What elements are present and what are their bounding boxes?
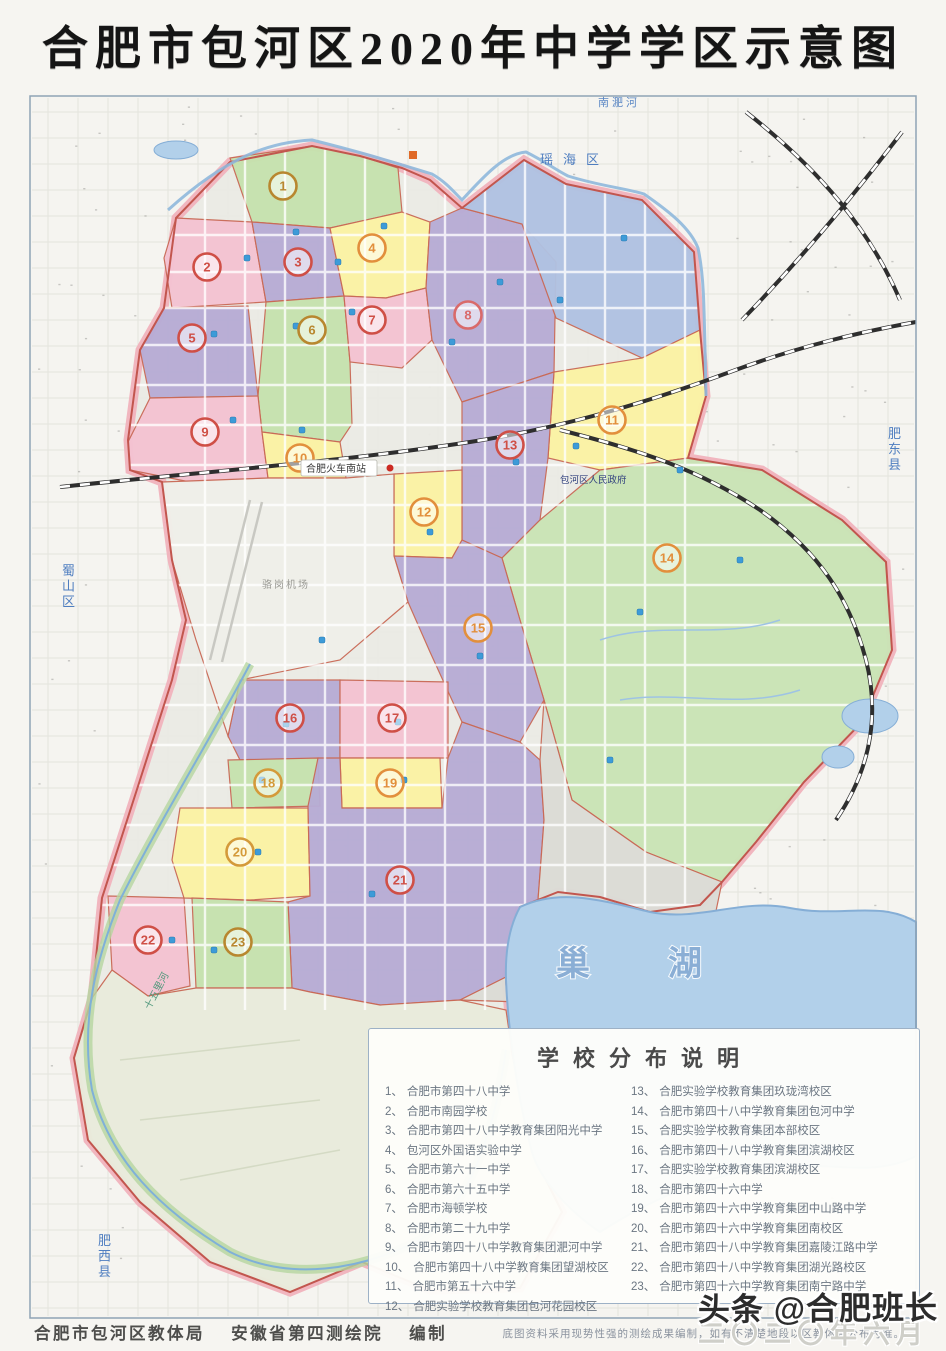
legend-item-number: 13、 — [631, 1086, 655, 1098]
school-icon — [319, 637, 325, 643]
legend-item-number: 22、 — [631, 1262, 655, 1274]
zone-badge-number: 6 — [308, 323, 315, 338]
school-icon — [369, 891, 375, 897]
legend-item: 11、合肥市第五十六中学 — [385, 1278, 631, 1298]
legend-item: 19、合肥市第四十六中学教育集团中山路中学 — [631, 1200, 905, 1220]
legend-item-school: 合肥市第四十六中学教育集团中山路中学 — [659, 1203, 866, 1215]
legend-item-school: 合肥市第四十八中学教育集团阳光中学 — [407, 1125, 603, 1137]
legend-item-number: 6、 — [385, 1184, 403, 1196]
school-icon — [381, 223, 387, 229]
legend-item: 22、合肥市第四十八中学教育集团湖光路校区 — [631, 1259, 905, 1279]
legend-item-number: 17、 — [631, 1164, 655, 1176]
school-icon — [621, 235, 627, 241]
legend-item-school: 合肥市第四十八中学教育集团淝河中学 — [407, 1242, 603, 1254]
legend-column-left: 1、合肥市第四十八中学2、合肥市南园学校3、合肥市第四十八中学教育集团阳光中学4… — [385, 1083, 631, 1317]
legend-item-number: 21、 — [631, 1242, 655, 1254]
map-label: 巢 — [556, 945, 590, 983]
zone-badge-number: 21 — [393, 873, 407, 888]
zone-badge-number: 5 — [188, 331, 195, 346]
school-icon — [255, 849, 261, 855]
legend-item-number: 5、 — [385, 1164, 403, 1176]
legend-item-number: 3、 — [385, 1125, 403, 1137]
zone-badge-number: 1 — [279, 179, 286, 194]
legend-item: 9、合肥市第四十八中学教育集团淝河中学 — [385, 1239, 631, 1259]
legend-item-school: 合肥市第六十五中学 — [407, 1184, 511, 1196]
legend-item-number: 14、 — [631, 1106, 655, 1118]
legend-item-school: 合肥市南园学校 — [407, 1106, 488, 1118]
legend-item: 1、合肥市第四十八中学 — [385, 1083, 631, 1103]
legend-item-number: 20、 — [631, 1223, 655, 1235]
zone-badge-11: 11 — [599, 407, 626, 434]
zone-badge-number: 16 — [283, 711, 297, 726]
legend-item-school: 合肥市第五十六中学 — [412, 1281, 516, 1293]
poi-square — [409, 151, 417, 159]
legend-item: 15、合肥实验学校教育集团本部校区 — [631, 1122, 905, 1142]
watermark-toutiao: 头条 @合肥班长 — [608, 1283, 938, 1332]
school-icon — [677, 467, 683, 473]
zone-badge-14: 14 — [654, 545, 681, 572]
map-label: 南淝河 — [598, 95, 640, 109]
school-icon — [637, 609, 643, 615]
legend-item-number: 19、 — [631, 1203, 655, 1215]
school-icon — [335, 259, 341, 265]
zone-badge-number: 23 — [231, 935, 245, 950]
zone-badge-20: 20 — [227, 839, 254, 866]
zone-badge-number: 8 — [464, 308, 471, 323]
legend-item: 5、合肥市第六十一中学 — [385, 1161, 631, 1181]
station-dot — [387, 465, 394, 472]
page-title: 合肥市包河区2020年中学学区示意图 — [0, 12, 946, 78]
school-icon — [349, 309, 355, 315]
legend-item-school: 合肥市第四十八中学教育集团滨湖校区 — [659, 1145, 855, 1157]
school-icon — [497, 279, 503, 285]
zone-badge-3: 3 — [285, 249, 312, 276]
zone-badge-number: 18 — [261, 776, 275, 791]
legend-item-school: 合肥实验学校教育集团本部校区 — [659, 1125, 820, 1137]
legend-item-number: 9、 — [385, 1242, 403, 1254]
legend-item: 3、合肥市第四十八中学教育集团阳光中学 — [385, 1122, 631, 1142]
legend-item-school: 合肥实验学校教育集团包河花园校区 — [413, 1301, 597, 1313]
credits-line: 合肥市包河区教体局 安徽省第四测绘院 编制 — [34, 1320, 447, 1344]
legend-item-school: 合肥市第四十八中学教育集团望湖校区 — [413, 1262, 609, 1274]
zone-badge-number: 22 — [141, 933, 155, 948]
legend-item-school: 合肥市第六十一中学 — [407, 1164, 511, 1176]
zone-badge-number: 20 — [233, 845, 247, 860]
zone-badge-number: 4 — [368, 241, 376, 256]
legend-item-number: 7、 — [385, 1203, 403, 1215]
legend-item: 10、合肥市第四十八中学教育集团望湖校区 — [385, 1259, 631, 1279]
legend-item-number: 12、 — [385, 1301, 409, 1313]
zone-badge-9: 9 — [192, 419, 219, 446]
zone-badge-1: 1 — [270, 173, 297, 200]
zone-badge-13: 13 — [497, 432, 524, 459]
legend-box: 学校分布说明 1、合肥市第四十八中学2、合肥市南园学校3、合肥市第四十八中学教育… — [368, 1028, 920, 1304]
school-icon — [299, 427, 305, 433]
zone-badge-number: 15 — [471, 621, 485, 636]
legend-item: 13、合肥实验学校教育集团玖珑湾校区 — [631, 1083, 905, 1103]
school-icon — [230, 417, 236, 423]
zone-badge-number: 13 — [503, 438, 517, 453]
zone-badge-19: 19 — [377, 770, 404, 797]
legend-item-school: 包河区外国语实验中学 — [407, 1145, 522, 1157]
school-icon — [293, 229, 299, 235]
zone-badge-number: 19 — [383, 776, 397, 791]
map-label: 合肥火车南站 — [306, 462, 366, 475]
legend-item-number: 10、 — [385, 1262, 409, 1274]
legend-item-school: 合肥市第二十九中学 — [407, 1223, 511, 1235]
legend-item: 4、包河区外国语实验中学 — [385, 1142, 631, 1162]
legend-item: 8、合肥市第二十九中学 — [385, 1220, 631, 1240]
zone-badge-18: 18 — [255, 770, 282, 797]
legend-item-number: 4、 — [385, 1145, 403, 1157]
school-icon — [449, 339, 455, 345]
legend-item: 14、合肥市第四十八中学教育集团包河中学 — [631, 1103, 905, 1123]
pond — [822, 746, 854, 768]
legend-item-school: 合肥实验学校教育集团玖珑湾校区 — [659, 1086, 832, 1098]
school-icon — [607, 757, 613, 763]
legend-item-number: 18、 — [631, 1184, 655, 1196]
legend-item: 20、合肥市第四十六中学教育集团南校区 — [631, 1220, 905, 1240]
map-label: 包河区人民政府 — [560, 474, 627, 486]
legend-item-school: 合肥市第四十六中学教育集团南校区 — [659, 1223, 843, 1235]
school-icon — [211, 947, 217, 953]
legend-item-number: 16、 — [631, 1145, 655, 1157]
zone-badge-22: 22 — [135, 927, 162, 954]
zone-badge-number: 3 — [294, 255, 301, 270]
school-icon — [557, 297, 563, 303]
legend-item-school: 合肥实验学校教育集团滨湖校区 — [659, 1164, 820, 1176]
zone-badge-23: 23 — [225, 929, 252, 956]
legend-item: 21、合肥市第四十八中学教育集团嘉陵江路中学 — [631, 1239, 905, 1259]
legend-item-number: 1、 — [385, 1086, 403, 1098]
legend-item: 17、合肥实验学校教育集团滨湖校区 — [631, 1161, 905, 1181]
school-icon — [169, 937, 175, 943]
map-sheet: { "title": "合肥市包河区2020年中学学区示意图", "legend… — [0, 0, 946, 1350]
legend-item-number: 8、 — [385, 1223, 403, 1235]
zone-badge-4: 4 — [359, 235, 386, 262]
legend-columns: 1、合肥市第四十八中学2、合肥市南园学校3、合肥市第四十八中学教育集团阳光中学4… — [385, 1083, 905, 1317]
legend-item-school: 合肥市第四十八中学教育集团包河中学 — [659, 1106, 855, 1118]
school-icon — [211, 331, 217, 337]
legend-item: 16、合肥市第四十八中学教育集团滨湖校区 — [631, 1142, 905, 1162]
legend-item-school: 合肥市第四十八中学教育集团嘉陵江路中学 — [659, 1242, 878, 1254]
legend-item-school: 合肥市第四十八中学 — [407, 1086, 511, 1098]
legend-item: 2、合肥市南园学校 — [385, 1103, 631, 1123]
zone-badge-8: 8 — [455, 302, 482, 329]
zone-badge-7: 7 — [359, 307, 386, 334]
map-label: 湖 — [668, 945, 702, 983]
legend-title: 学校分布说明 — [385, 1041, 905, 1073]
school-icon — [427, 529, 433, 535]
school-icon — [477, 653, 483, 659]
map-label: 骆岗机场 — [262, 578, 310, 591]
legend-item-school: 合肥市海顿学校 — [407, 1203, 488, 1215]
zone-badge-5: 5 — [179, 325, 206, 352]
map-label: 蜀山区 — [62, 563, 75, 609]
zone-badge-16: 16 — [277, 705, 304, 732]
zone-badge-15: 15 — [465, 615, 492, 642]
zone-badge-number: 11 — [605, 413, 619, 428]
school-icon — [244, 255, 250, 261]
pond — [154, 141, 198, 159]
zone-badge-number: 7 — [368, 313, 375, 328]
legend-item: 18、合肥市第四十六中学 — [631, 1181, 905, 1201]
zone-badge-number: 14 — [660, 551, 675, 566]
zone-badge-number: 9 — [201, 425, 208, 440]
legend-column-right: 13、合肥实验学校教育集团玖珑湾校区14、合肥市第四十八中学教育集团包河中学15… — [631, 1083, 905, 1317]
legend-item-school: 合肥市第四十六中学 — [659, 1184, 763, 1196]
zone-badge-6: 6 — [299, 317, 326, 344]
legend-item-school: 合肥市第四十八中学教育集团湖光路校区 — [659, 1262, 866, 1274]
legend-item-number: 15、 — [631, 1125, 655, 1137]
zone-badge-number: 17 — [385, 711, 399, 726]
school-icon — [573, 443, 579, 449]
map-label: 肥西县 — [98, 1233, 111, 1279]
legend-item: 6、合肥市第六十五中学 — [385, 1181, 631, 1201]
zone-badge-number: 2 — [203, 260, 210, 275]
legend-item: 12、合肥实验学校教育集团包河花园校区 — [385, 1298, 631, 1318]
map-label: 肥东县 — [888, 426, 901, 472]
zone-badge-17: 17 — [379, 705, 406, 732]
legend-item: 7、合肥市海顿学校 — [385, 1200, 631, 1220]
school-icon — [513, 459, 519, 465]
school-icon — [737, 557, 743, 563]
zone-badge-12: 12 — [411, 499, 438, 526]
map-label: 瑶海区 — [540, 152, 609, 167]
zone-badge-21: 21 — [387, 867, 414, 894]
zone-badge-number: 12 — [417, 505, 431, 520]
legend-item-number: 2、 — [385, 1106, 403, 1118]
zone-badge-2: 2 — [194, 254, 221, 281]
legend-item-number: 11、 — [385, 1281, 408, 1293]
